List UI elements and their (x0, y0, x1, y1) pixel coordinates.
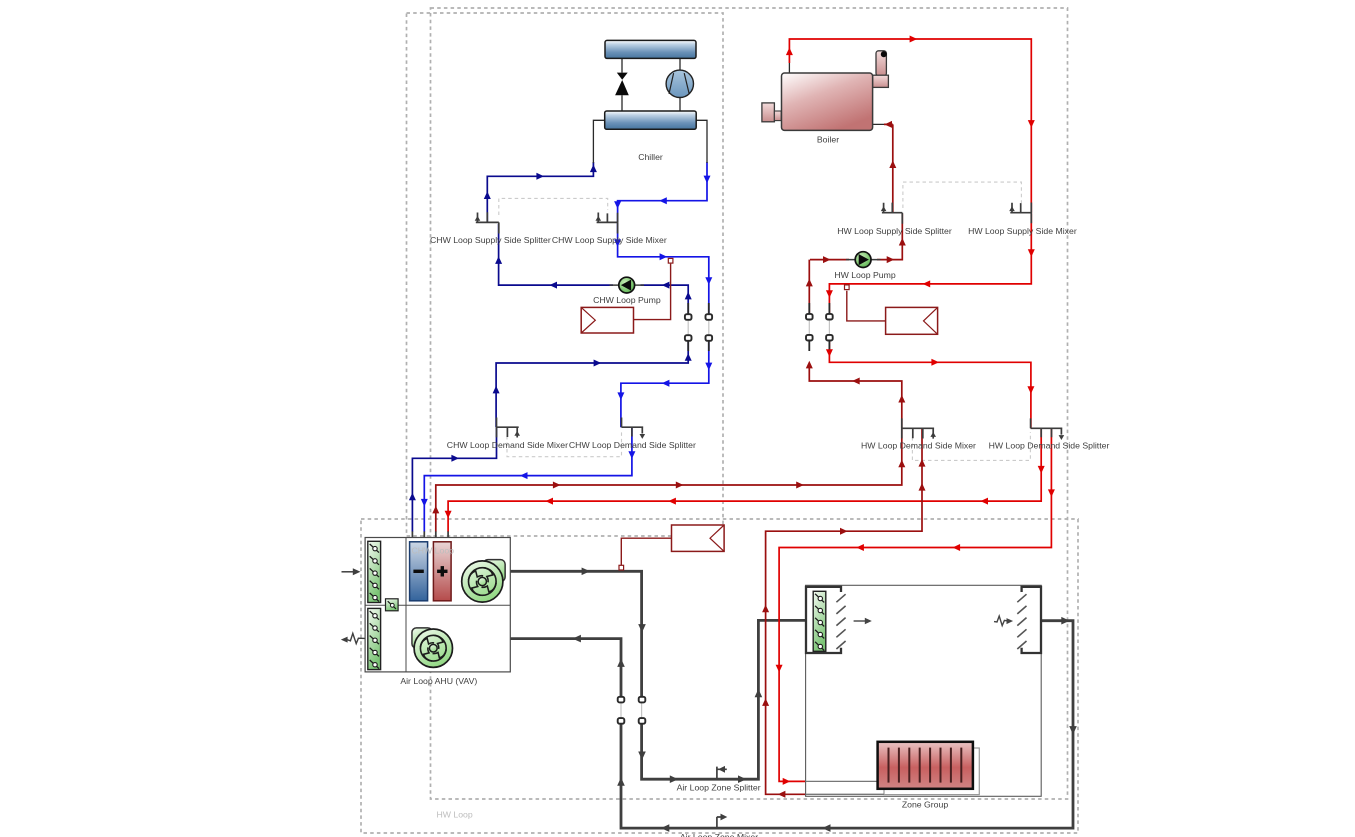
svg-text:HW Loop Supply Side Mixer: HW Loop Supply Side Mixer (968, 226, 1077, 236)
svg-text:Chiller: Chiller (638, 152, 663, 162)
svg-text:CHW Loop Supply Side Splitter: CHW Loop Supply Side Splitter (430, 235, 551, 245)
svg-text:HW Loop Pump: HW Loop Pump (834, 270, 895, 280)
svg-text:HW Loop: HW Loop (437, 810, 473, 820)
svg-text:HW Loop Demand Side Mixer: HW Loop Demand Side Mixer (861, 441, 976, 451)
svg-text:CHW Loop: CHW Loop (412, 546, 455, 556)
svg-text:CHW Loop Demand Side Mixer: CHW Loop Demand Side Mixer (447, 440, 568, 450)
svg-text:Air Loop AHU (VAV): Air Loop AHU (VAV) (400, 676, 477, 686)
svg-text:CHW Loop Supply Side Mixer: CHW Loop Supply Side Mixer (552, 235, 667, 245)
svg-text:Air Loop Zone Splitter: Air Loop Zone Splitter (677, 783, 761, 793)
svg-text:HW Loop Supply Side Splitter: HW Loop Supply Side Splitter (837, 226, 952, 236)
svg-text:HW Loop Demand Side Splitter: HW Loop Demand Side Splitter (989, 441, 1110, 451)
svg-text:CHW Loop Demand Side Splitter: CHW Loop Demand Side Splitter (569, 440, 696, 450)
svg-text:Air Loop Zone Mixer: Air Loop Zone Mixer (680, 832, 758, 837)
svg-text:CHW Loop Pump: CHW Loop Pump (593, 295, 661, 305)
svg-text:Boiler: Boiler (817, 135, 839, 145)
svg-text:Zone Group: Zone Group (902, 800, 949, 810)
